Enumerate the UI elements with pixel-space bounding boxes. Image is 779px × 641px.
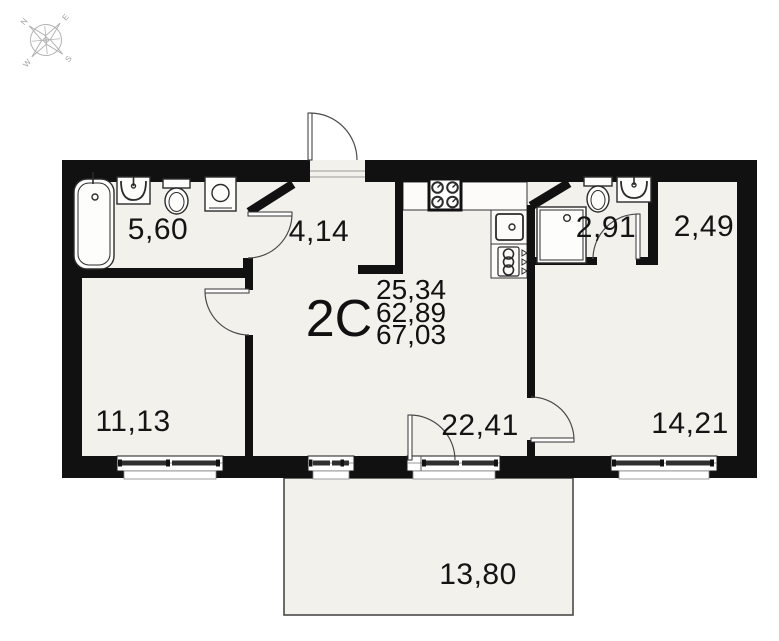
compass-icon: N E S W [0,0,93,88]
compass-w: W [21,57,33,69]
room-area-wardrobe: 2,49 [674,210,734,244]
room-area-hallway: 4,14 [289,215,349,249]
compass-e: E [61,12,71,22]
balcony-floor [284,478,573,615]
wall-stub-bath1-door [243,258,253,278]
window-right [611,456,717,479]
washbasin-icon [117,177,150,204]
balcony-door-leaf [408,415,412,460]
room-area-kitchen-living: 22,41 [441,409,519,443]
room1-door-leaf [205,289,249,293]
bath1-door-leaf [248,212,292,216]
room-area-bedroom-left: 11,13 [95,405,170,439]
toilet-icon [163,179,190,214]
entry-door-leaf [308,113,312,160]
wall-center-right [527,205,535,398]
wall-bath1-bottom [82,268,245,278]
wall-top-right [365,160,757,182]
entry-door-arc [310,113,357,160]
room-area-bedroom-right: 14,21 [651,407,729,441]
balcony-door-window [407,456,500,479]
room2-door-leaf [531,438,574,442]
stove-icon [429,179,461,210]
window-left [117,456,223,479]
wall-hallway-stub [358,265,403,274]
windows [117,456,717,479]
compass-s: S [63,54,73,64]
wall-room1-top [245,278,253,290]
wall-hallway-right [395,182,403,267]
room-area-balcony: 13,80 [439,558,517,592]
floor-plan: N E S W 5,60 4,14 2,91 2,49 11,13 22,41 … [0,0,779,641]
total-area-value: 67,03 [376,324,446,347]
area-summary: 25,34 62,89 67,03 [376,279,446,347]
room-area-bathroom-left: 5,60 [128,213,188,247]
bathtub-icon [74,172,114,269]
washbasin-2-icon [617,177,651,202]
room-area-bathroom-right: 2,91 [576,211,636,245]
wall-room1-right [245,335,253,456]
wall-right [737,160,757,478]
bath2-door-leaf [636,214,640,259]
washing-machine-icon [205,177,236,211]
apartment-type-label: 2С [306,289,372,349]
compass-n: N [19,16,30,26]
window-balcony-small [308,456,354,479]
